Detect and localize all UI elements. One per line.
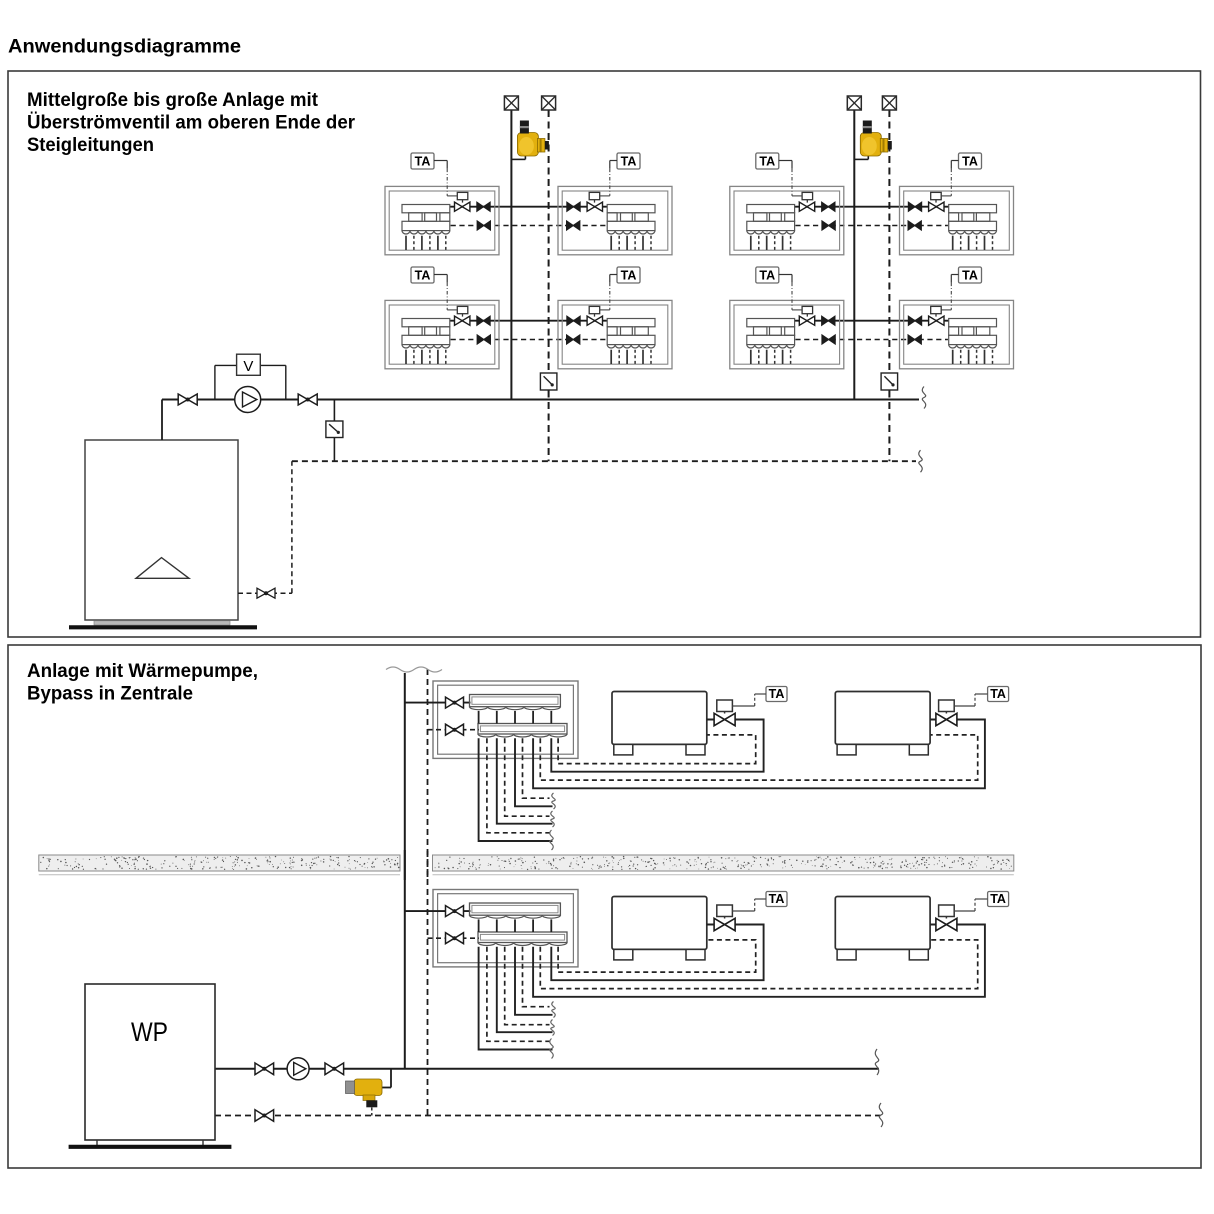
svg-text:Steigleitungen: Steigleitungen [27,135,154,156]
svg-text:Bypass in Zentrale: Bypass in Zentrale [27,684,193,705]
svg-text:TA: TA [621,268,637,282]
svg-text:TA: TA [759,268,775,282]
svg-text:TA: TA [990,687,1006,701]
svg-text:TA: TA [962,154,978,168]
svg-text:WP: WP [131,1017,168,1047]
svg-text:TA: TA [769,892,785,906]
svg-text:TA: TA [415,154,431,168]
svg-text:TA: TA [769,687,785,701]
svg-text:Anlage mit Wärmepumpe,: Anlage mit Wärmepumpe, [27,661,258,682]
svg-text:TA: TA [621,154,637,168]
svg-text:TA: TA [990,892,1006,906]
svg-text:Überströmventil am oberen Ende: Überströmventil am oberen Ende der [27,113,356,134]
svg-text:Mittelgroße bis große Anlage m: Mittelgroße bis große Anlage mit [27,90,319,111]
svg-text:TA: TA [759,154,775,168]
svg-text:TA: TA [962,268,978,282]
svg-text:TA: TA [415,268,431,282]
svg-text:Anwendungsdiagramme: Anwendungsdiagramme [8,37,241,58]
svg-text:V: V [243,358,253,375]
